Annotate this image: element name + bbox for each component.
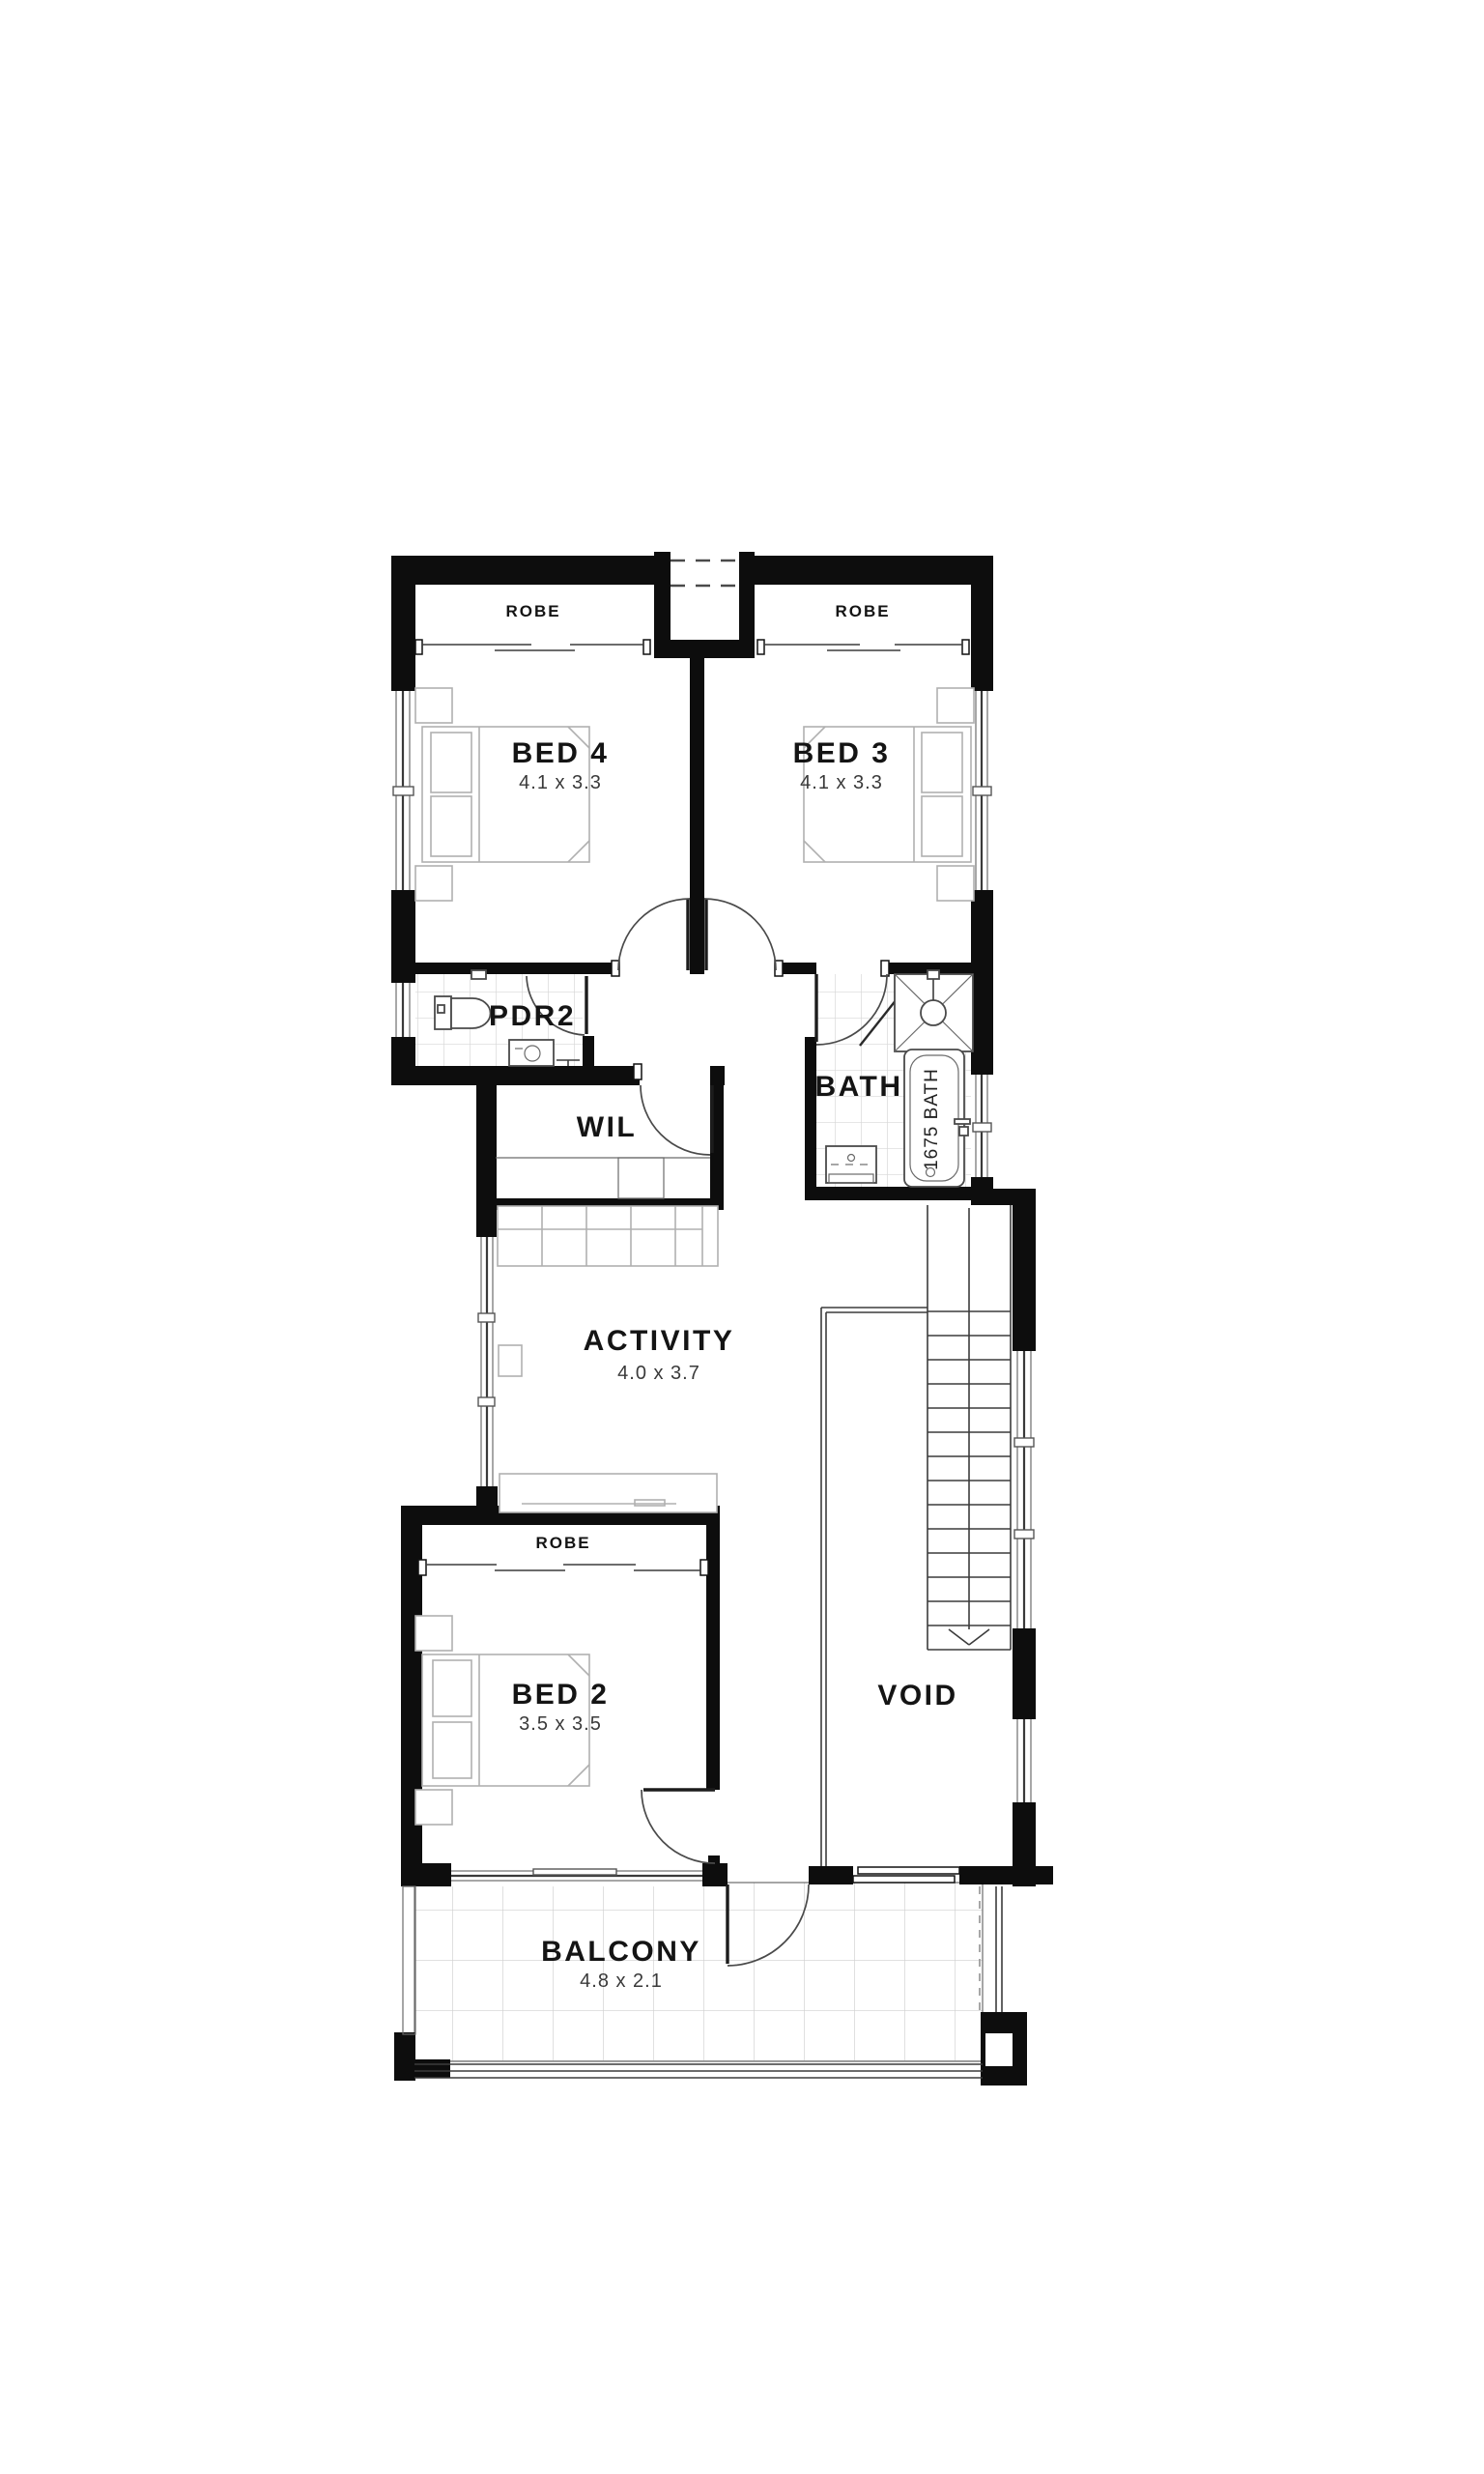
activity-dims-label: 4.0 x 3.7 bbox=[617, 1363, 700, 1384]
bath-name-label: BATH bbox=[814, 1071, 902, 1103]
void-outline bbox=[821, 1308, 927, 1866]
wil-door bbox=[634, 1064, 712, 1155]
bed2-door bbox=[642, 1790, 715, 1863]
bed4-dims-label: 4.1 x 3.3 bbox=[519, 772, 602, 793]
bed2-robe-label: ROBE bbox=[535, 1534, 590, 1552]
wil-name-label: WIL bbox=[577, 1111, 637, 1143]
wil-shelf-icon bbox=[496, 1158, 710, 1198]
bed3-door bbox=[704, 899, 783, 976]
bed3-name-label: BED 3 bbox=[793, 737, 891, 769]
bed4-robe-track bbox=[415, 640, 650, 654]
bed2-robe-track bbox=[418, 1560, 708, 1575]
bed4-bed-icon bbox=[415, 688, 589, 901]
pdr2-vanity-icon bbox=[509, 1040, 554, 1066]
bed3-bed-icon bbox=[804, 688, 974, 901]
bed4-door bbox=[612, 899, 690, 976]
bed3-dims-label: 4.1 x 3.3 bbox=[800, 772, 883, 793]
bathtub-size-label: 1675 BATH bbox=[922, 1068, 942, 1170]
stairs-icon bbox=[927, 1205, 1011, 1650]
bed3-robe-label: ROBE bbox=[835, 602, 890, 620]
bed2-dims-label: 3.5 x 3.5 bbox=[519, 1713, 602, 1735]
wall-fixture-icon bbox=[471, 970, 486, 979]
stair-down-arrow-icon bbox=[949, 1629, 989, 1645]
activity-window bbox=[476, 1237, 497, 1486]
pdr2-name-label: PDR2 bbox=[489, 1000, 576, 1032]
void-name-label: VOID bbox=[877, 1680, 957, 1712]
void-sliding-door bbox=[853, 1867, 959, 1883]
stair-window bbox=[1013, 1351, 1036, 1628]
balcony-tile-floor bbox=[414, 1883, 983, 2061]
balcony-name-label: BALCONY bbox=[541, 1936, 701, 1968]
pdr2-window bbox=[391, 983, 415, 1037]
bath-window bbox=[971, 1075, 993, 1177]
balcony-dims-label: 4.8 x 2.1 bbox=[580, 1971, 663, 1992]
floor-plan-page: ROBE ROBE ROBE BED 4 4.1 x 3.3 BED 3 4.1… bbox=[0, 0, 1484, 2474]
bed4-name-label: BED 4 bbox=[512, 737, 610, 769]
bed4-robe-label: ROBE bbox=[505, 602, 560, 620]
toilet-icon bbox=[435, 996, 491, 1029]
floor-plan-drawing: ROBE ROBE ROBE BED 4 4.1 x 3.3 BED 3 4.1… bbox=[0, 0, 1484, 2474]
bed2-name-label: BED 2 bbox=[512, 1679, 610, 1711]
bed2-window bbox=[451, 1865, 702, 1886]
shower-icon bbox=[895, 970, 973, 1051]
side-table-icon bbox=[499, 1345, 522, 1376]
desk-icon bbox=[499, 1474, 717, 1512]
niche-dashed-lines bbox=[671, 561, 739, 586]
bed4-window bbox=[391, 691, 415, 890]
void-window bbox=[1013, 1719, 1036, 1802]
bed3-robe-track bbox=[757, 640, 969, 654]
bath-vanity-icon bbox=[826, 1146, 876, 1183]
balcony-west-parapet bbox=[403, 1886, 415, 2034]
sofa-icon bbox=[498, 1206, 718, 1266]
activity-name-label: ACTIVITY bbox=[584, 1325, 735, 1357]
